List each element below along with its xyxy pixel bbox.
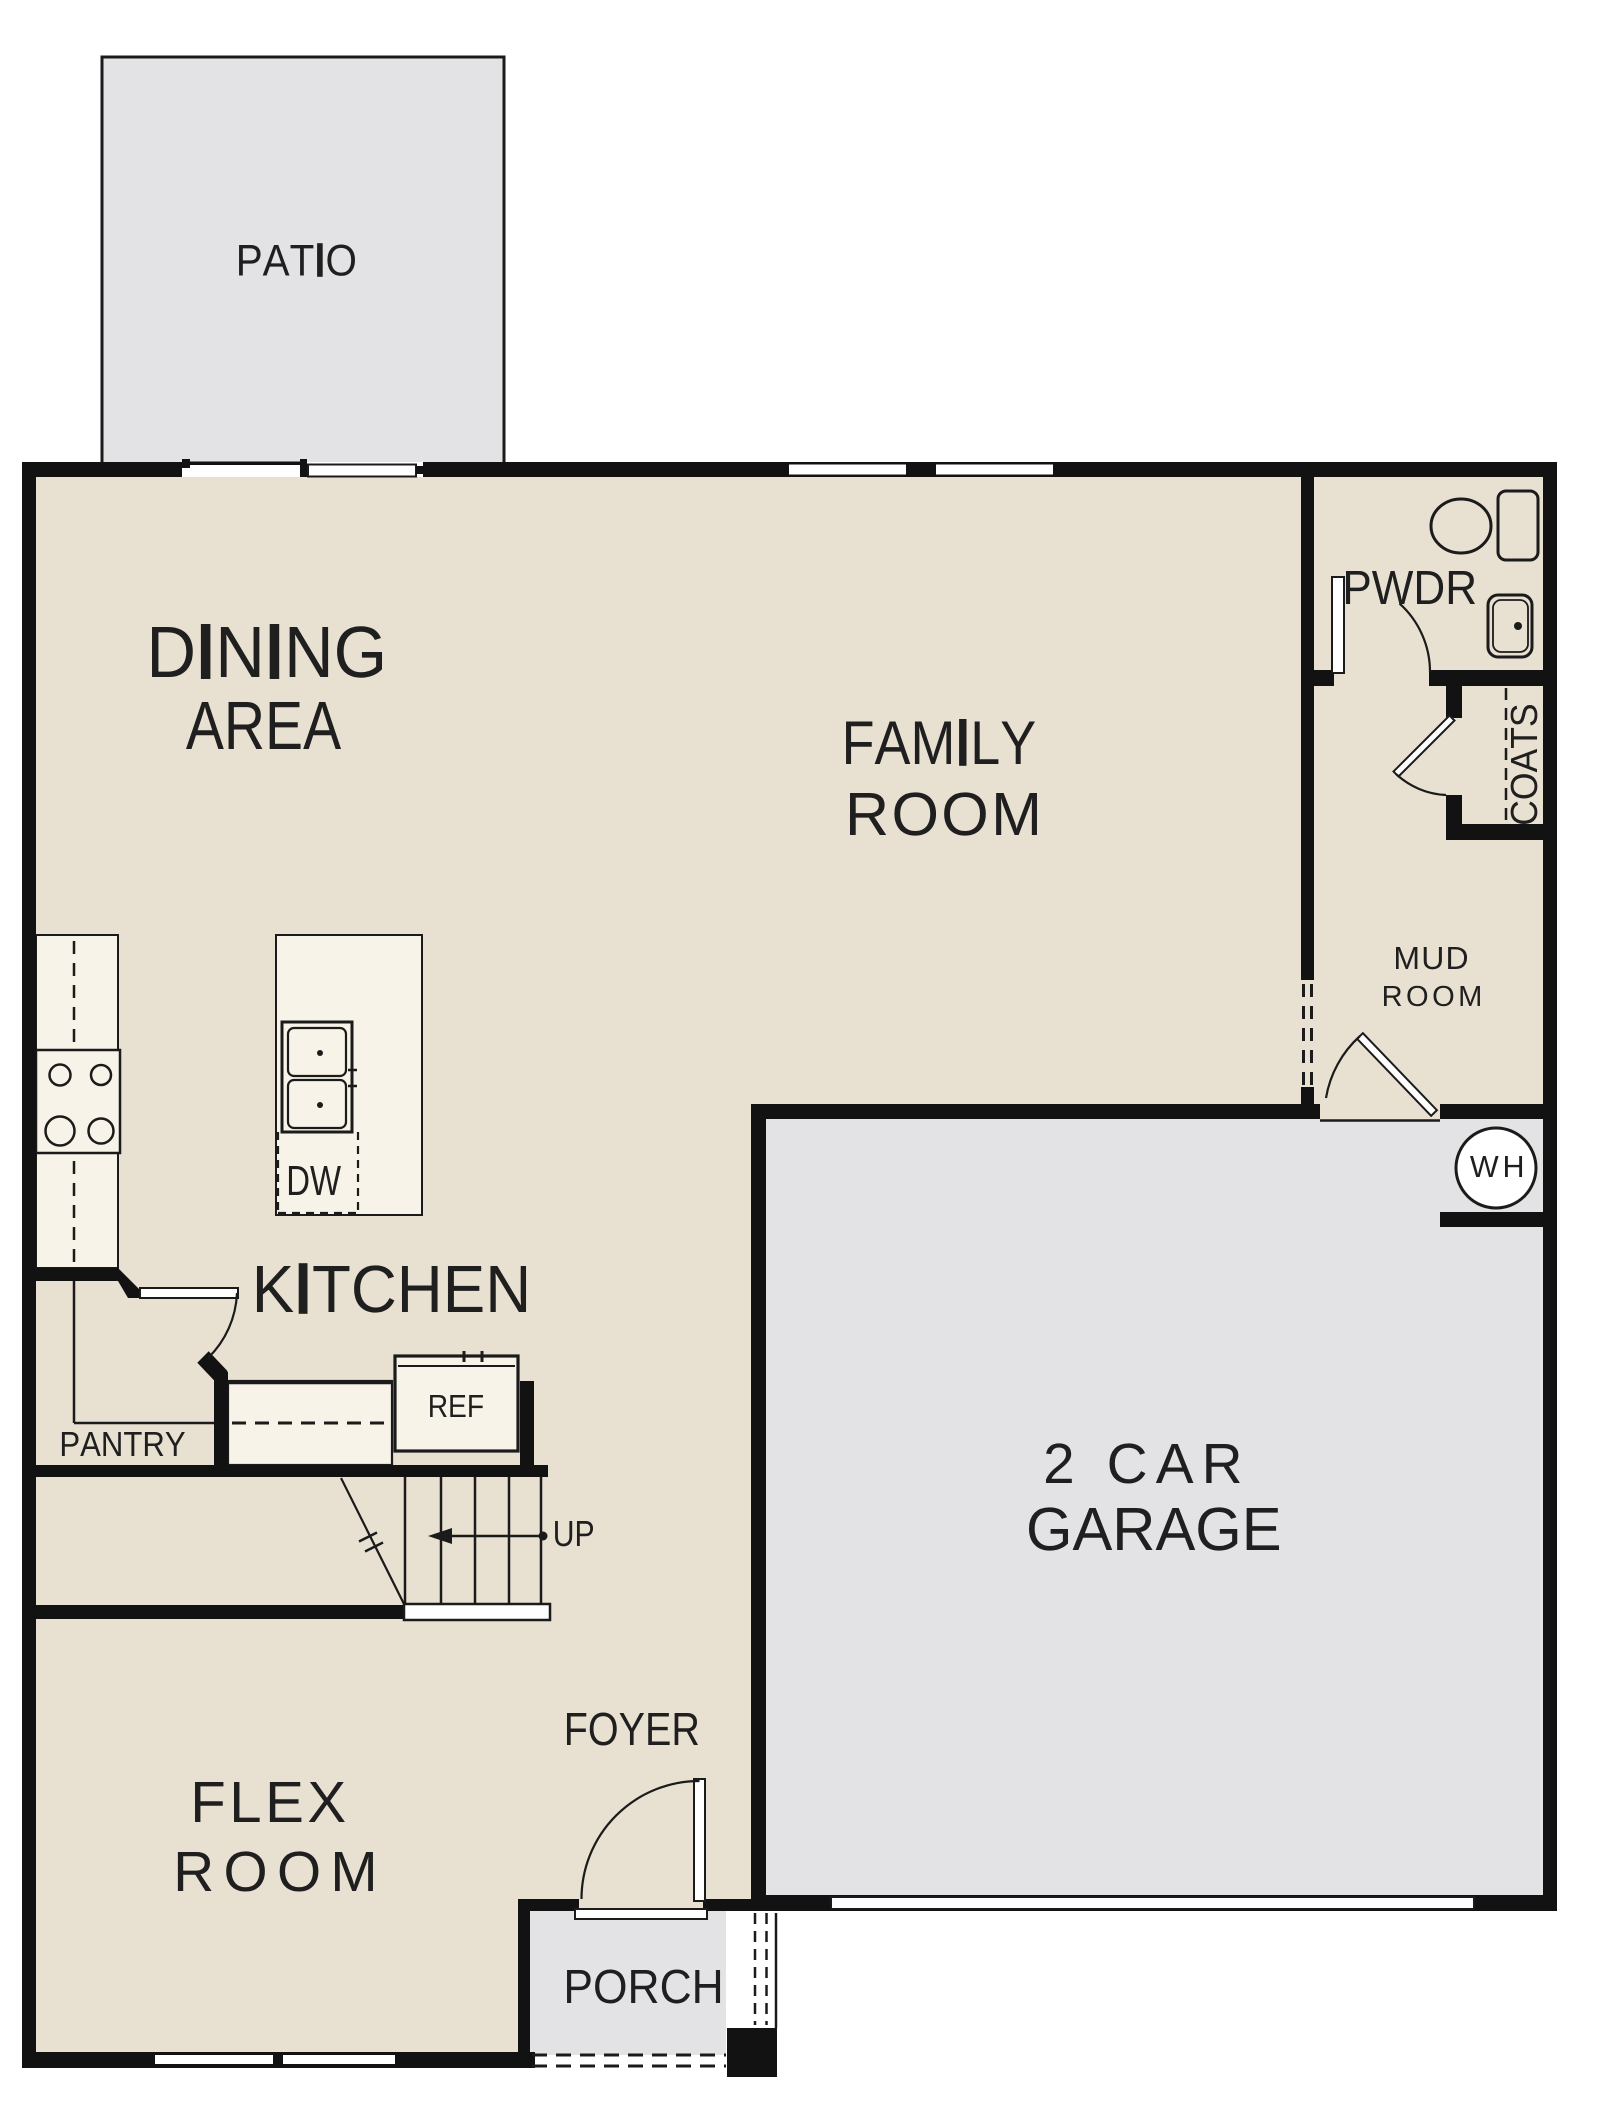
svg-text:REF: REF (428, 1388, 484, 1424)
svg-text:KITCHEN: KITCHEN (252, 1252, 531, 1327)
svg-text:UP: UP (553, 1513, 595, 1554)
svg-text:COATS: COATS (1504, 703, 1546, 825)
svg-text:FLEX: FLEX (190, 1770, 346, 1835)
svg-text:FOYER: FOYER (564, 1703, 700, 1755)
svg-text:ROOM: ROOM (1382, 981, 1483, 1013)
svg-text:PWDR: PWDR (1342, 562, 1477, 615)
svg-text:PORCH: PORCH (563, 1961, 723, 2014)
svg-text:ROOM: ROOM (845, 780, 1042, 848)
svg-text:DW: DW (286, 1157, 341, 1204)
svg-text:FAMILY: FAMILY (842, 709, 1037, 778)
svg-text:2 CAR: 2 CAR (1043, 1433, 1243, 1496)
svg-text:GARAGE: GARAGE (1026, 1495, 1282, 1563)
svg-text:DINING: DINING (146, 612, 387, 693)
svg-text:PATIO: PATIO (236, 237, 357, 286)
svg-text:WH: WH (1470, 1150, 1525, 1184)
svg-text:PANTRY: PANTRY (59, 1425, 185, 1464)
svg-text:AREA: AREA (186, 688, 342, 764)
svg-text:MUD: MUD (1393, 940, 1468, 976)
